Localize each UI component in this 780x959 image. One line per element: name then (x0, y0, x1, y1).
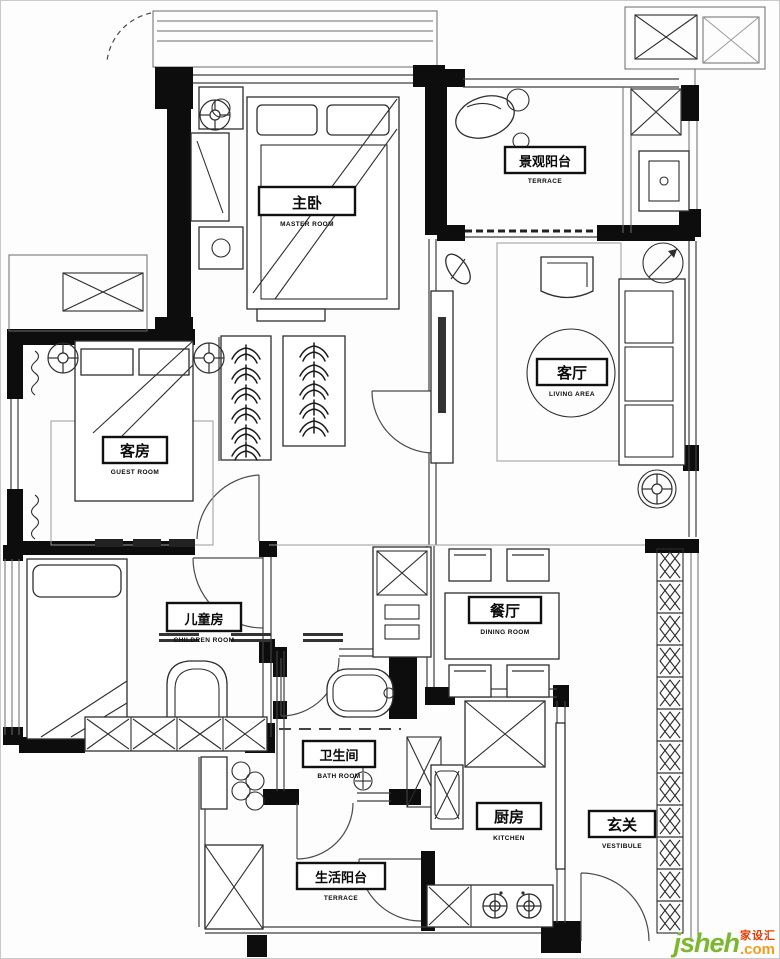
svg-text:儿童房: 儿童房 (183, 612, 223, 627)
watermark-brand-text: jsheh (673, 930, 739, 957)
washing-machine (205, 845, 263, 929)
room-label-guest: 客房 GUEST ROOM (103, 437, 167, 476)
floor-plan-page: 主卧 MASTER ROOM 景观阳台 TERRACE 客厅 LIVING AR… (0, 0, 780, 959)
guest-door (197, 475, 259, 541)
svg-text:餐厅: 餐厅 (490, 602, 520, 620)
svg-text:主卧: 主卧 (292, 194, 322, 212)
children-wardrobe-row (85, 717, 267, 751)
svg-text:TERRACE: TERRACE (324, 895, 358, 902)
bathtub (327, 669, 394, 717)
water-heater-nook (631, 89, 689, 211)
kitchen-sink (431, 765, 463, 829)
svg-text:MASTER ROOM: MASTER ROOM (280, 221, 334, 228)
svg-text:CHILDREN ROOM: CHILDREN ROOM (174, 637, 235, 644)
svg-text:LIVING AREA: LIVING AREA (549, 391, 595, 398)
living-sofa (619, 279, 685, 465)
children-bed (27, 559, 127, 739)
balcony-lounge-chair (450, 89, 529, 149)
room-label-living: 客厅 LIVING AREA (527, 329, 615, 417)
kitchen-sliding-door-panel (556, 723, 565, 869)
room-label-view-balcony: 景观阳台 TERRACE (505, 147, 585, 185)
living-armchair (541, 257, 593, 298)
wardrobe-closets (221, 336, 345, 460)
ceiling-fan-icon (194, 343, 224, 373)
ceiling-fan-icon (48, 343, 78, 373)
svg-text:TERRACE: TERRACE (528, 178, 562, 185)
svg-text:BATH ROOM: BATH ROOM (317, 773, 360, 780)
svg-text:卫生间: 卫生间 (319, 748, 358, 763)
guest-bay-window (9, 255, 147, 331)
svg-text:客房: 客房 (119, 442, 150, 460)
svg-text:景观阳台: 景观阳台 (519, 154, 571, 169)
svg-text:客厅: 客厅 (556, 364, 587, 382)
curtain-squiggle (32, 351, 39, 395)
room-label-kitchen: 厨房 KITCHEN (477, 803, 541, 842)
svg-text:GUEST ROOM: GUEST ROOM (111, 469, 159, 476)
svg-text:DINING ROOM: DINING ROOM (480, 629, 529, 636)
svg-text:厨房: 厨房 (494, 808, 524, 826)
entry-door (581, 873, 649, 941)
pendant-lamp-icon (643, 243, 683, 283)
master-door (372, 391, 434, 453)
ac-balcony (625, 7, 765, 85)
floor-plan-drawing: 主卧 MASTER ROOM 景观阳台 TERRACE 客厅 LIVING AR… (1, 1, 780, 959)
svg-text:玄关: 玄关 (607, 816, 637, 834)
svg-text:生活阳台: 生活阳台 (315, 870, 367, 885)
watermark-tld-text: .com (740, 942, 775, 957)
dining-cabinet (373, 547, 431, 657)
balcony-door (297, 803, 353, 859)
tv-console (431, 291, 453, 463)
curtain-squiggle (32, 495, 39, 539)
svg-text:VESTIBULE: VESTIBULE (602, 843, 642, 850)
room-label-children: 儿童房 CHILDREN ROOM (167, 603, 241, 644)
room-label-bath: 卫生间 BATH ROOM (303, 741, 375, 780)
room-label-vestibule: 玄关 VESTIBULE (589, 811, 655, 850)
balcony-stools (201, 757, 264, 810)
balcony-door-swing-dashed (107, 13, 151, 61)
svg-text:KITCHEN: KITCHEN (493, 835, 525, 842)
plant-icon (441, 250, 475, 288)
fridge (465, 701, 545, 767)
downlight-icon (638, 470, 676, 508)
vestibule-lattice-screen (657, 549, 683, 933)
children-armchair (167, 661, 227, 721)
watermark-logo: jsheh 家设汇 .com (673, 930, 776, 957)
stove (427, 885, 553, 927)
